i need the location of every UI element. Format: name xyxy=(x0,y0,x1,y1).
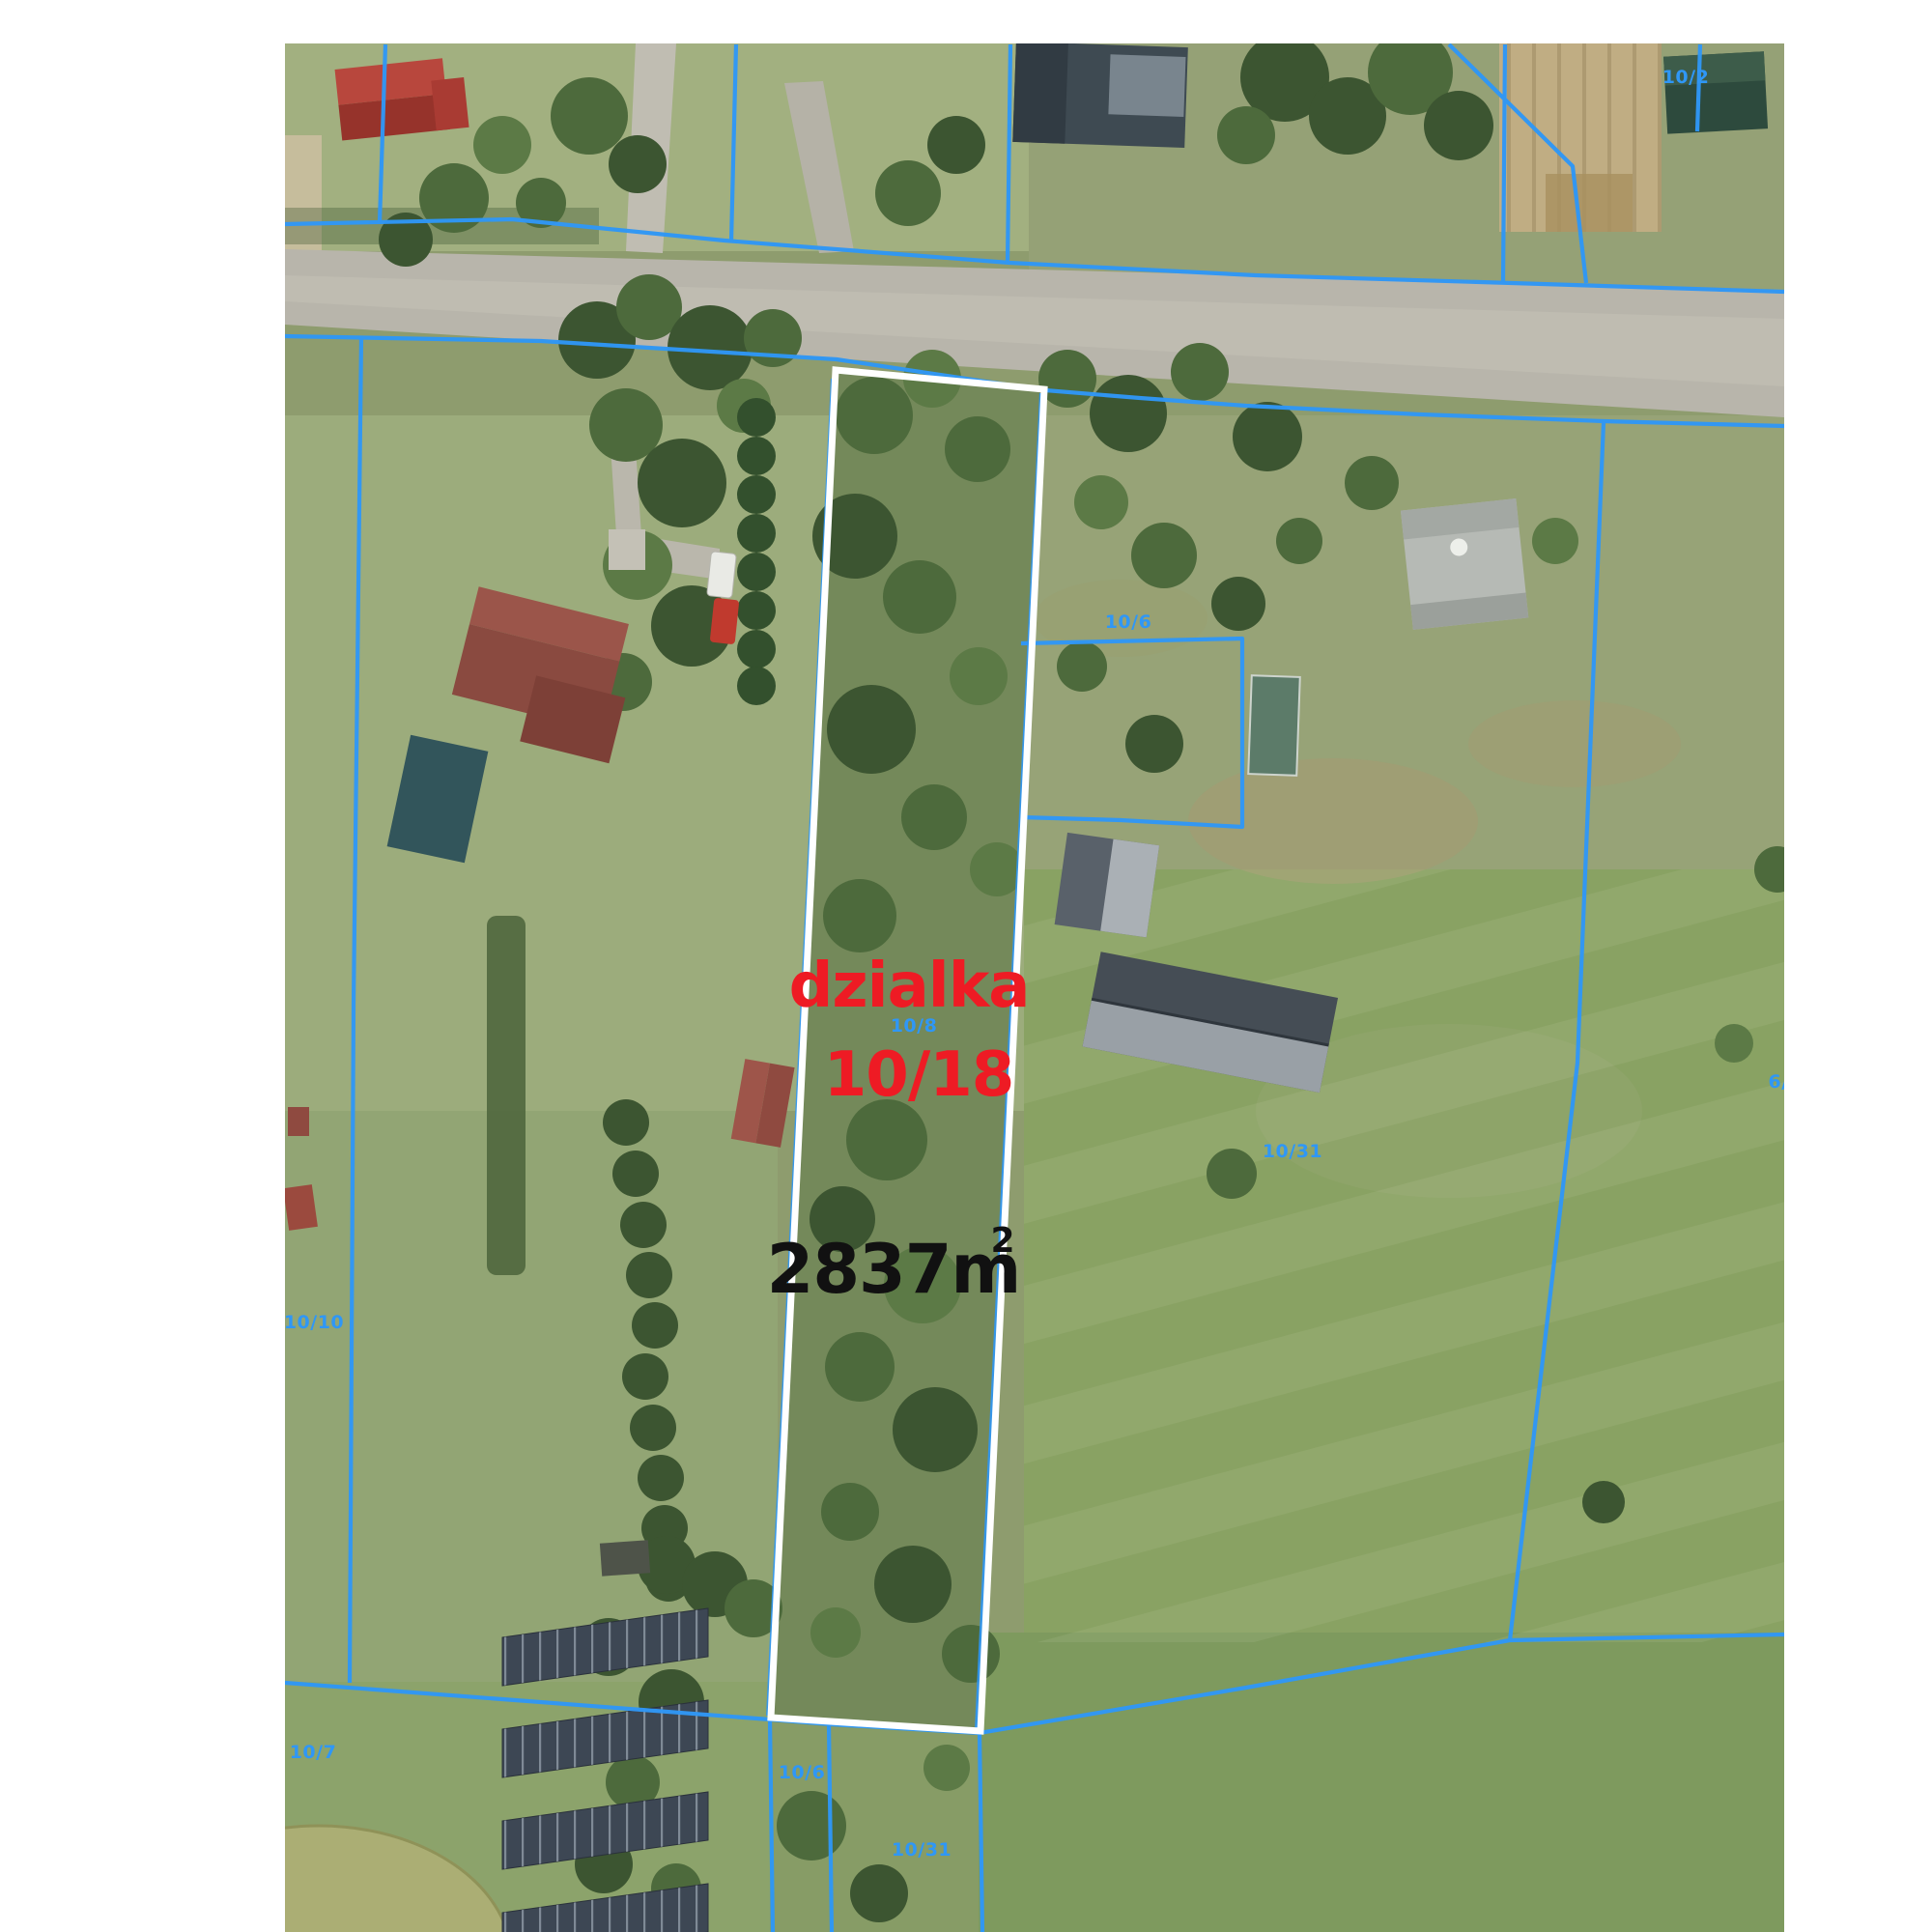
cadastral-parcel-label: 6/3 xyxy=(1769,1071,1803,1093)
cadastral-parcel-label: 10/10 xyxy=(284,1312,344,1333)
house-grey-roof-right xyxy=(1401,498,1528,630)
house-dark-roof-top xyxy=(1012,42,1188,148)
green-barn-topright xyxy=(1663,51,1768,133)
car-white xyxy=(707,552,737,598)
cadastral-parcel-label: 10/31 xyxy=(892,1839,952,1861)
cadastral-parcel-label: 10/6 xyxy=(779,1762,826,1783)
cadastral-parcel-label: 10/6 xyxy=(1105,611,1152,633)
parcel-number-label: 10/18 xyxy=(824,1039,1014,1111)
map-screenshot: 10/210/610/810/3110/1010/710/610/316/3 d… xyxy=(0,0,1932,1932)
small-shed-left2 xyxy=(288,1107,309,1136)
cadastral-parcel-label: 10/7 xyxy=(290,1742,337,1763)
small-shed-left xyxy=(283,1184,318,1231)
cadastral-parcel-label: 10/31 xyxy=(1263,1141,1322,1162)
shed-grey xyxy=(1055,833,1159,937)
terrace xyxy=(609,529,645,570)
cadastral-parcel-label: 10/2 xyxy=(1662,67,1710,88)
greenhouse xyxy=(1248,675,1300,776)
car-red xyxy=(710,598,740,644)
garden-hedge-strip xyxy=(487,916,526,1275)
aerial-map: 10/210/610/810/3110/1010/710/610/316/3 d… xyxy=(0,0,1932,1932)
parcel-name-label: dzialka xyxy=(789,951,1030,1022)
area-label: 2837m xyxy=(767,1230,1021,1309)
area-superscript: 2 xyxy=(990,1221,1014,1261)
solar-farm-shed xyxy=(600,1540,650,1576)
